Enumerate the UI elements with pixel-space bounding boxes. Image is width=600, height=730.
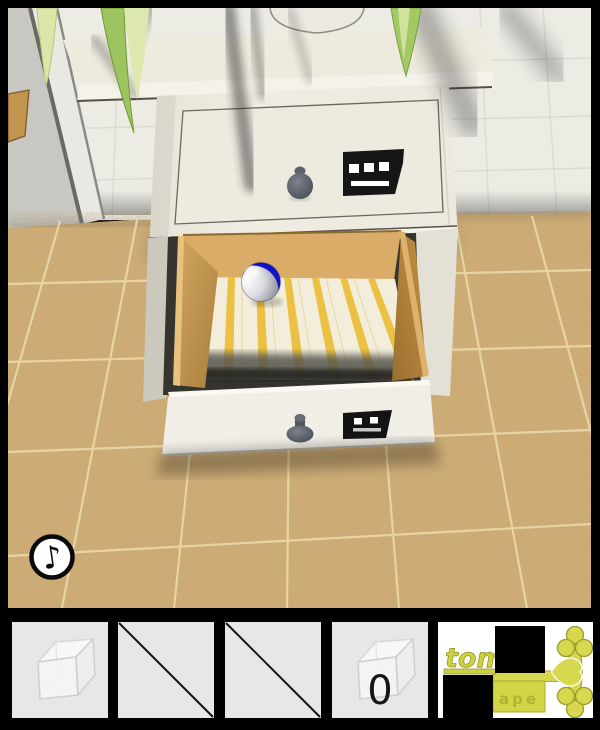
- bottom-drawer-sign[interactable]: [343, 410, 392, 439]
- key-shaft-text: ape: [499, 690, 539, 708]
- inventory-slot-3-empty[interactable]: [225, 622, 321, 718]
- music-button[interactable]: ♪: [32, 537, 73, 578]
- key-mask-square-top: [495, 626, 545, 673]
- gold-key-icon[interactable]: ape tom: [443, 626, 593, 718]
- glass-cube-icon: [38, 639, 95, 699]
- empty-slot-diagonal: [226, 623, 320, 717]
- inventory-slot-2-empty[interactable]: [118, 622, 214, 718]
- cube-number-label: 0: [367, 668, 392, 714]
- game-scene[interactable]: ♪: [0, 0, 600, 614]
- inventory-slot-5-selected-key[interactable]: ape tom: [438, 622, 593, 718]
- glass-cube-zero-icon: 0: [358, 639, 415, 714]
- open-drawer[interactable]: [143, 228, 458, 402]
- key-mask-square-bottom: [443, 675, 493, 718]
- empty-slot-diagonal: [119, 623, 213, 717]
- inventory-slot-4[interactable]: 0: [332, 622, 428, 718]
- inventory-slot-1[interactable]: [12, 622, 108, 718]
- top-drawer-sign[interactable]: [343, 149, 404, 196]
- open-drawer-front[interactable]: [156, 380, 440, 476]
